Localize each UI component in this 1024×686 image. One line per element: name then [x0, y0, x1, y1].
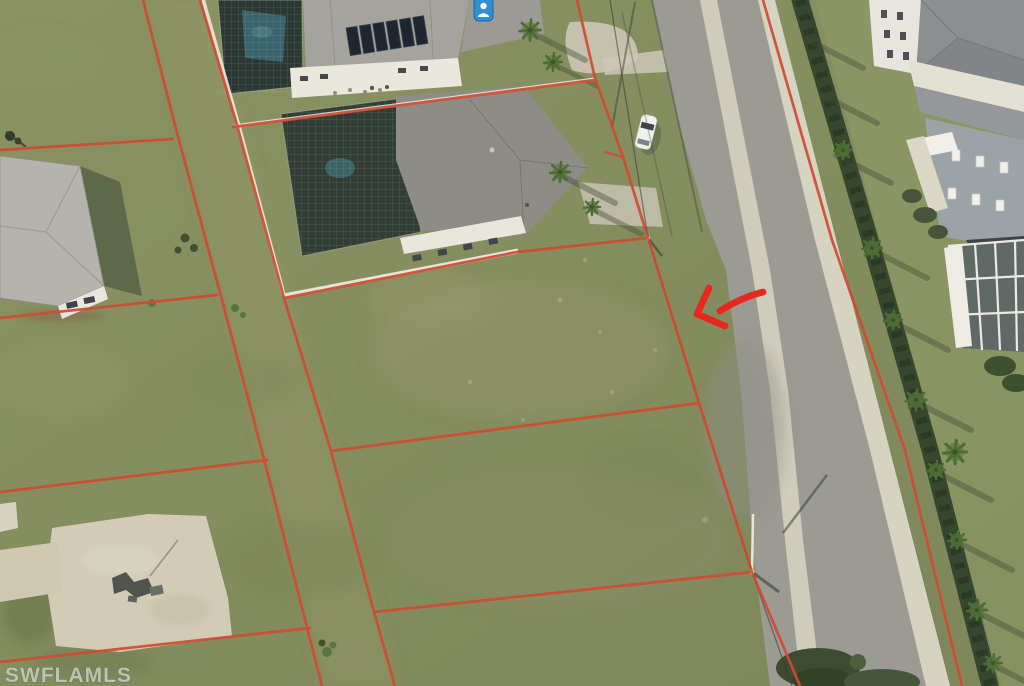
map-poi-icon: [474, 0, 493, 21]
aerial-photo: SWFLAMLS: [0, 0, 1024, 686]
watermark: SWFLAMLS: [5, 664, 132, 686]
